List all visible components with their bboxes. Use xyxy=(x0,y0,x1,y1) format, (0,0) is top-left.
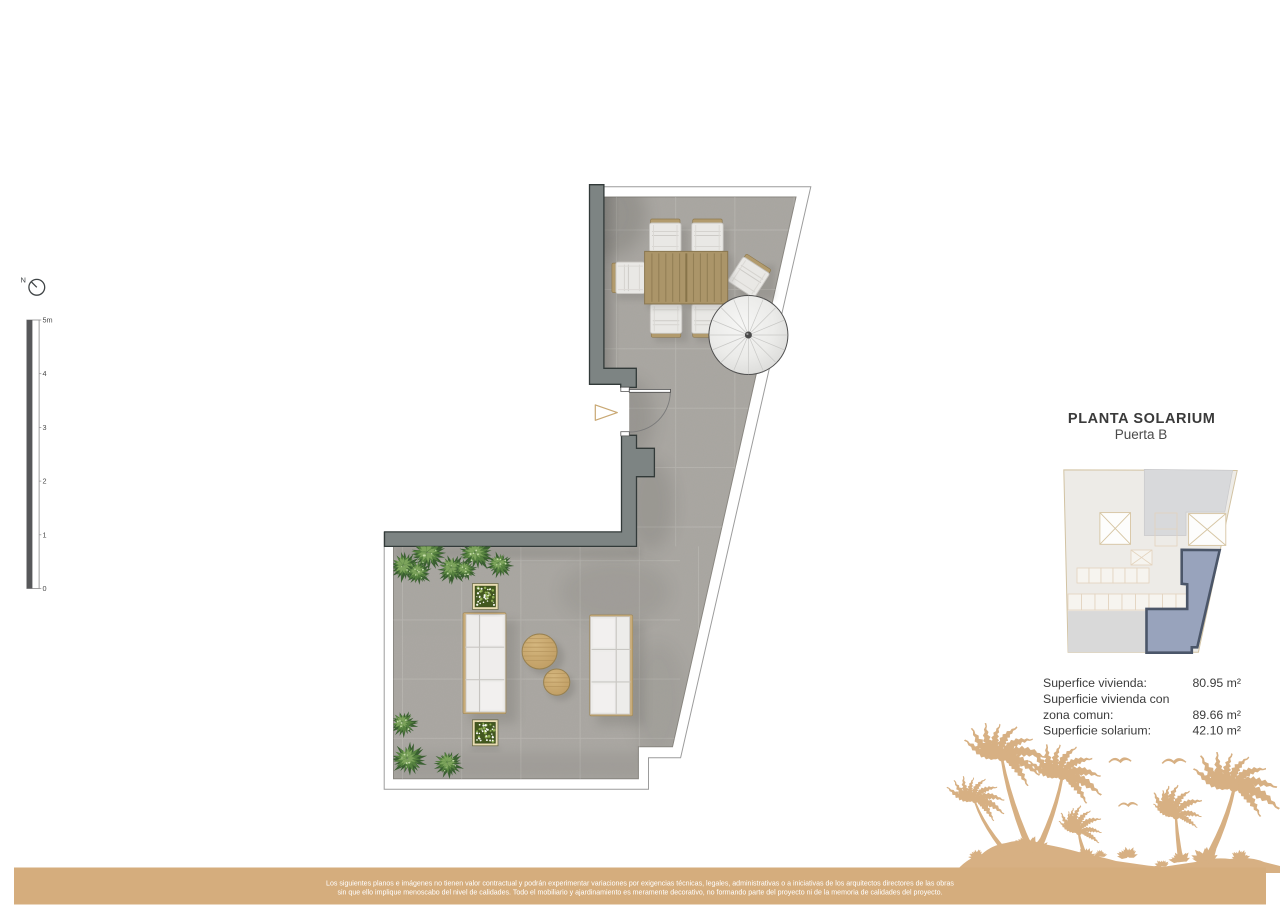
svg-text:1: 1 xyxy=(43,530,47,539)
svg-text:42.10 m²: 42.10 m² xyxy=(1192,724,1241,738)
svg-text:80.95 m²: 80.95 m² xyxy=(1192,676,1241,690)
svg-text:sin que ello implique menoscab: sin que ello implique menoscabo del nive… xyxy=(337,890,942,897)
svg-text:2: 2 xyxy=(43,477,47,486)
svg-text:PLANTA SOLARIUM: PLANTA SOLARIUM xyxy=(1068,411,1216,427)
svg-text:3: 3 xyxy=(43,423,47,432)
svg-text:89.66 m²: 89.66 m² xyxy=(1192,708,1241,722)
svg-text:zona comun:: zona comun: xyxy=(1043,708,1113,722)
svg-text:Los siguientes planos e imágen: Los siguientes planos e imágenes no tien… xyxy=(326,881,954,888)
svg-text:0: 0 xyxy=(43,584,47,593)
svg-text:Puerta B: Puerta B xyxy=(1115,427,1168,442)
svg-text:Superficie solarium:: Superficie solarium: xyxy=(1043,724,1151,738)
svg-text:N: N xyxy=(21,276,26,285)
svg-text:Superficie vivienda con: Superficie vivienda con xyxy=(1043,692,1170,706)
svg-text:5m: 5m xyxy=(43,316,53,325)
svg-text:Superfice vivienda:: Superfice vivienda: xyxy=(1043,676,1147,690)
svg-text:4: 4 xyxy=(43,369,47,378)
